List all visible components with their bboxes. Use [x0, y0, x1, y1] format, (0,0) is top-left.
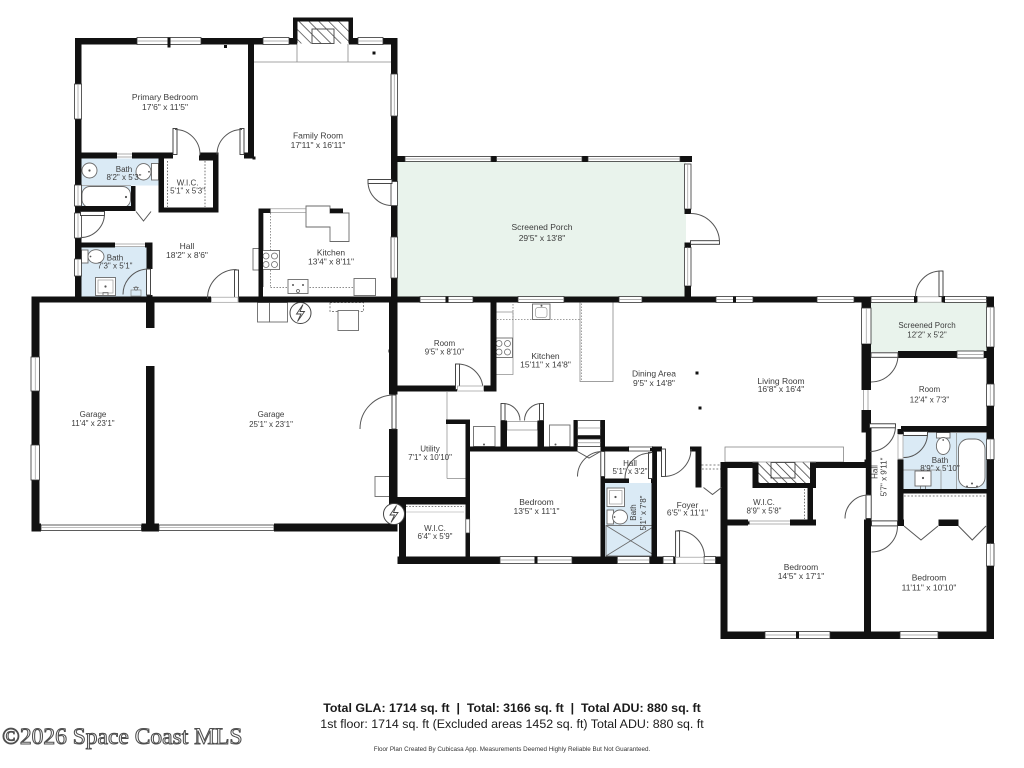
svg-text:8'9" x 5'10": 8'9" x 5'10" [920, 464, 960, 473]
svg-text:5'1" x 5'3": 5'1" x 5'3" [170, 187, 205, 196]
svg-text:Screened Porch: Screened Porch [898, 321, 955, 330]
svg-text:Floor Plan Created By Cubicasa: Floor Plan Created By Cubicasa App. Meas… [374, 746, 651, 753]
svg-text:©2026 Space Coast MLS: ©2026 Space Coast MLS [2, 724, 242, 750]
svg-text:Family Room: Family Room [293, 131, 343, 141]
svg-text:18'2" x 8'6": 18'2" x 8'6" [166, 250, 208, 260]
svg-text:Bath: Bath [629, 504, 638, 520]
svg-text:6'4" x 5'9": 6'4" x 5'9" [418, 532, 453, 541]
svg-text:Room: Room [919, 385, 941, 394]
svg-text:8'9" x 5'8": 8'9" x 5'8" [747, 507, 782, 516]
svg-text:Total GLA: 1714 sq. ft | Tot: Total GLA: 1714 sq. ft | Total: 3166 sq.… [323, 701, 701, 715]
svg-text:12'2" x 5'2": 12'2" x 5'2" [907, 331, 947, 340]
svg-text:6'5" x 11'1": 6'5" x 11'1" [667, 508, 708, 518]
svg-text:17'6" x 11'5": 17'6" x 11'5" [142, 102, 188, 112]
svg-text:Garage: Garage [258, 410, 285, 419]
svg-text:13'5" x 11'1": 13'5" x 11'1" [514, 506, 560, 516]
svg-text:1st floor: 1714 sq. ft (Exclud: 1st floor: 1714 sq. ft (Excluded areas 1… [320, 717, 704, 731]
svg-text:5'1" x 3'2": 5'1" x 3'2" [613, 467, 648, 476]
svg-text:5'7" x 9'11": 5'7" x 9'11" [880, 457, 889, 496]
svg-text:11'4" x 23'1": 11'4" x 23'1" [71, 419, 114, 428]
svg-text:Garage: Garage [80, 410, 107, 419]
svg-text:Hall: Hall [871, 465, 880, 479]
svg-text:7'3" x 5'1": 7'3" x 5'1" [98, 262, 133, 271]
svg-text:29'5" x 13'8": 29'5" x 13'8" [519, 233, 566, 243]
svg-text:15'11" x 14'8": 15'11" x 14'8" [520, 360, 571, 370]
svg-text:17'11" x 16'11": 17'11" x 16'11" [291, 140, 346, 150]
svg-text:5'1" x 7'8": 5'1" x 7'8" [639, 495, 648, 530]
svg-text:9'5" x 14'8": 9'5" x 14'8" [633, 378, 675, 388]
svg-text:12'4" x 7'3": 12'4" x 7'3" [910, 396, 950, 405]
svg-text:Screened Porch: Screened Porch [512, 222, 573, 232]
svg-text:7'1" x 10'10": 7'1" x 10'10" [408, 453, 452, 462]
svg-text:11'11" x 10'10": 11'11" x 10'10" [902, 582, 957, 592]
svg-text:8'2" x 5'3": 8'2" x 5'3" [107, 173, 142, 182]
svg-text:Bedroom: Bedroom [912, 573, 947, 583]
svg-text:9'5" x 8'10": 9'5" x 8'10" [425, 348, 465, 357]
svg-text:14'5" x 17'1": 14'5" x 17'1" [778, 571, 825, 581]
svg-text:Primary Bedroom: Primary Bedroom [132, 92, 198, 102]
svg-text:16'8" x 16'4": 16'8" x 16'4" [758, 384, 805, 394]
svg-text:13'4" x 8'11": 13'4" x 8'11" [308, 257, 354, 267]
svg-text:25'1" x 23'1": 25'1" x 23'1" [249, 420, 293, 429]
svg-text:Dining Area: Dining Area [632, 369, 676, 379]
